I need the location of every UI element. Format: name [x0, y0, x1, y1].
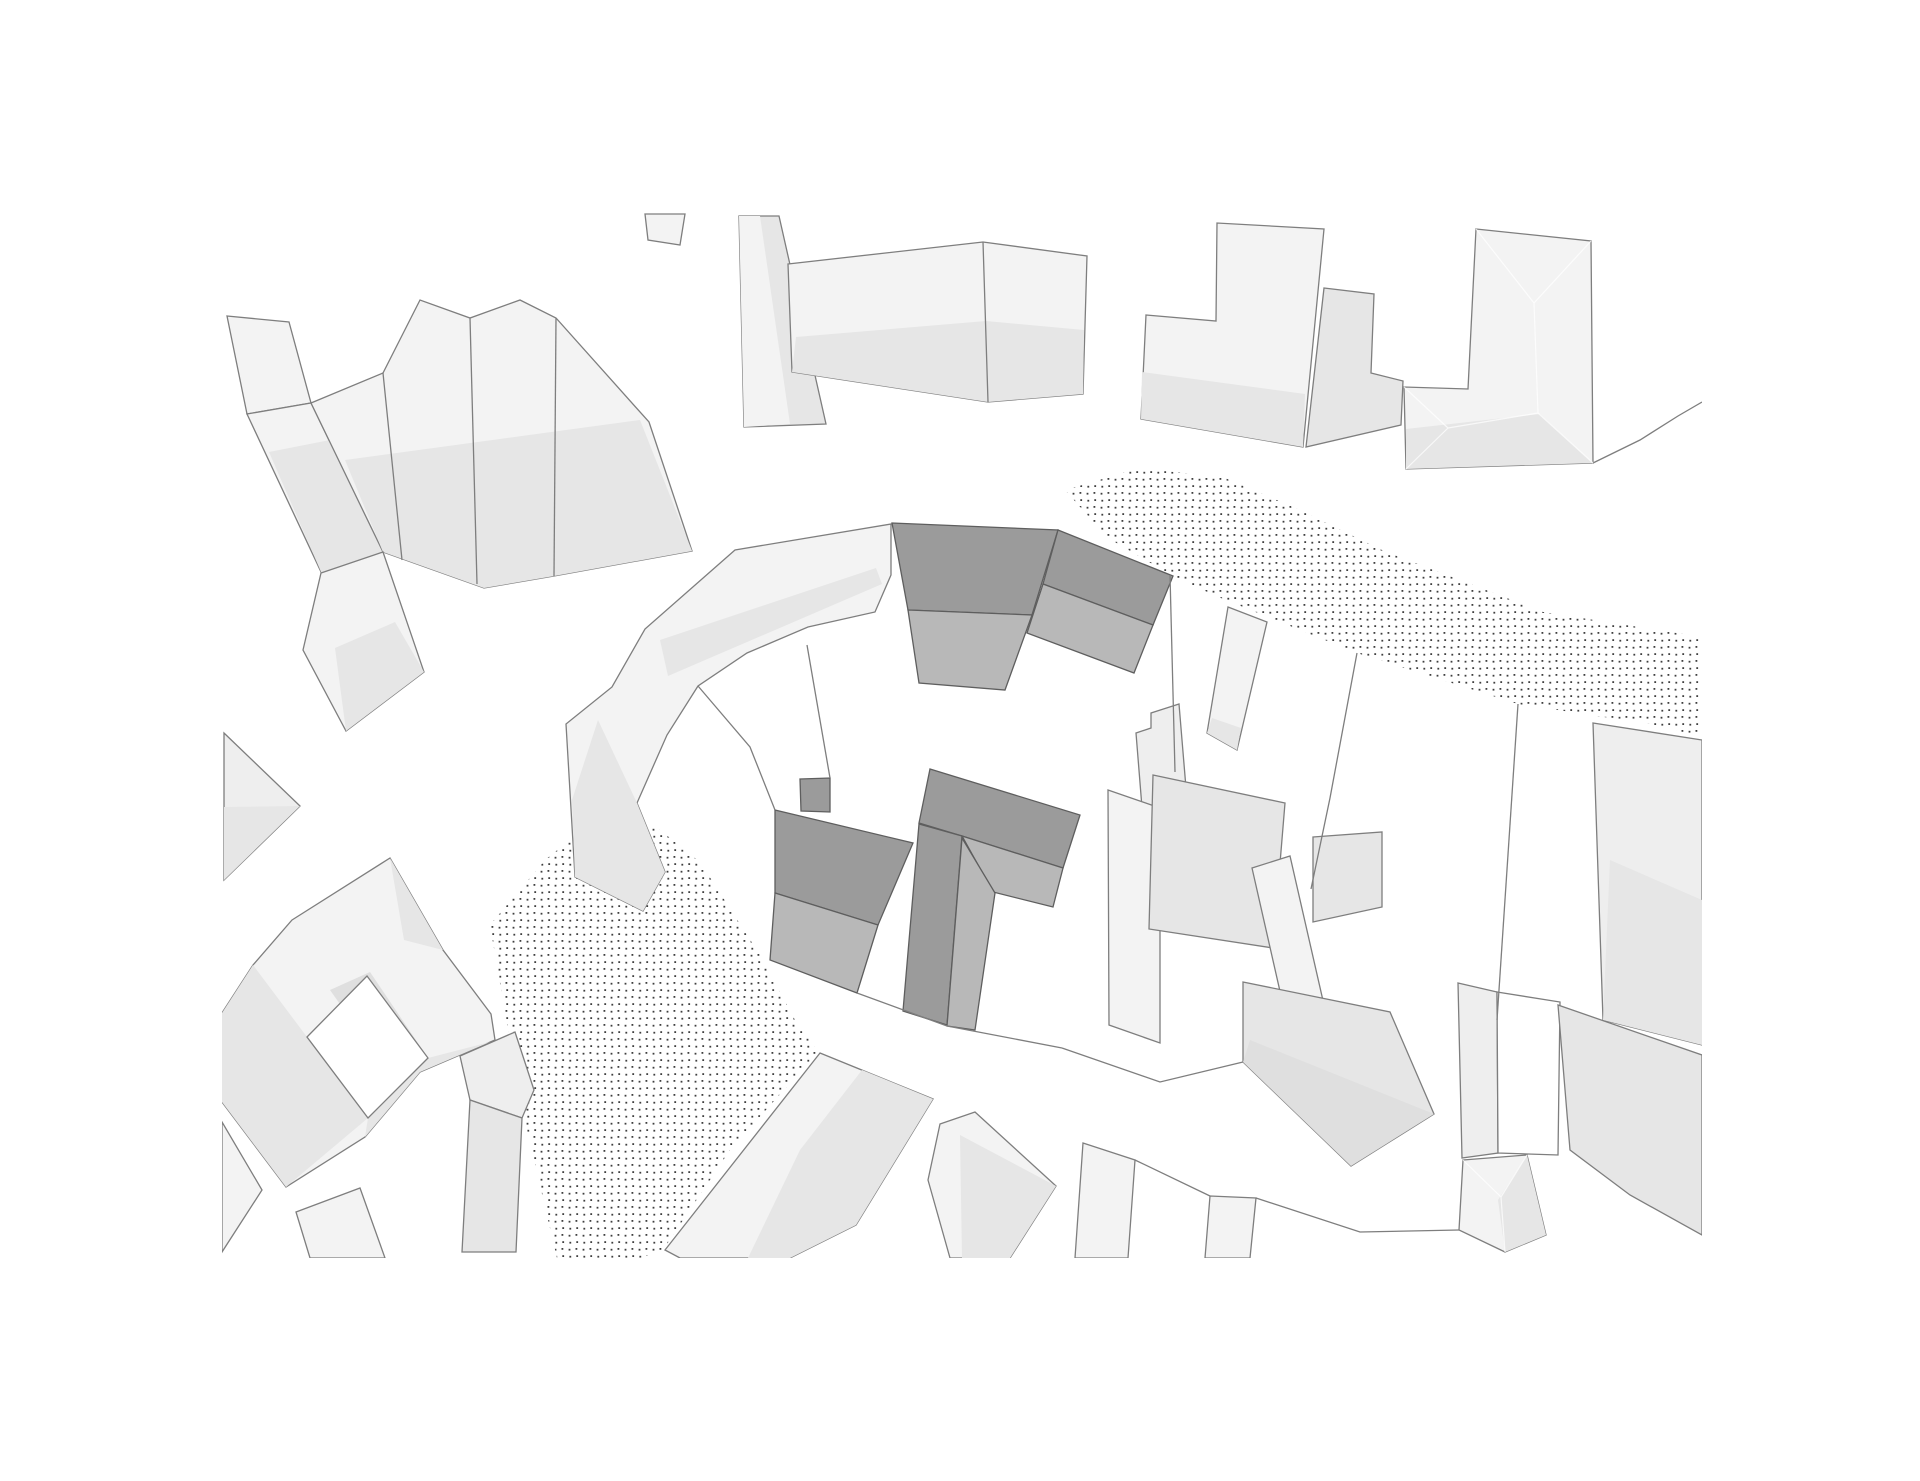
site-plan-page	[0, 0, 1920, 1481]
building-south-cut-2	[1205, 1196, 1256, 1258]
building-top-edge-cut	[645, 214, 685, 245]
site-plan-svg	[0, 0, 1920, 1481]
building-south-cut-1	[1075, 1143, 1135, 1258]
project-building-a-roof-dark	[892, 523, 1058, 615]
building-southeast-strip	[1458, 983, 1498, 1158]
building-east-quad	[1313, 832, 1382, 922]
building-southwest-bar	[462, 1100, 522, 1252]
parcel-southeast-white	[1497, 992, 1560, 1155]
project-building-c-annex-dark	[800, 778, 830, 812]
